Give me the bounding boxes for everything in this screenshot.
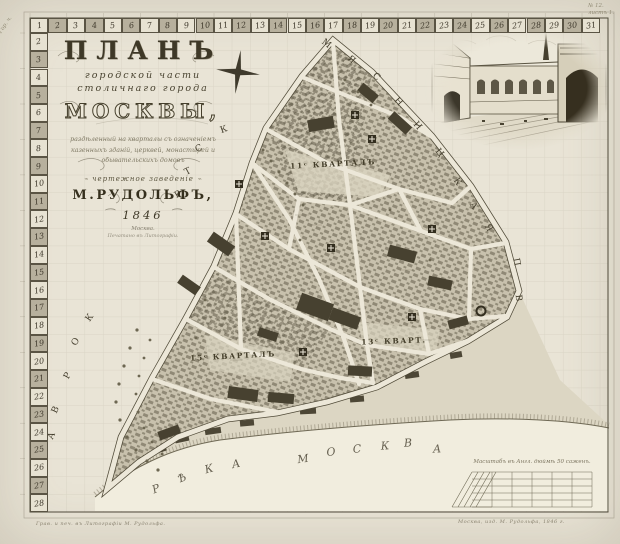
title-cartouche: ПЛАНЪ городской части столичнаго города … (48, 38, 238, 239)
title-script-line: раздѣленный на кварталы съ означеніемъ (48, 135, 238, 146)
imprint-right: Москва, изд. М. Рудольфа, 1846 г. (458, 519, 565, 525)
imprint-left: Грав. и печ. въ Литографіи М. Рудольфа. (36, 521, 166, 527)
title-script-line: обывательскихъ домовъ (48, 156, 238, 167)
map-title: ПЛАНЪ (48, 38, 238, 63)
scale-caption: Масштабъ въ Англ. дюймѣ 50 саженъ. (472, 459, 592, 465)
map-subtitle-1: городской части (48, 70, 238, 81)
map-subtitle-2: столичнаго города (48, 83, 238, 94)
publication-year: 1846 (48, 208, 238, 222)
corner-note-sheet: листъ 1. (588, 10, 614, 16)
corner-note-number: № 12. (588, 3, 604, 9)
author-name: М.РУДОЛЬФЪ, (48, 188, 238, 203)
publisher-line: чертежное заведеніе (48, 175, 238, 183)
place-line: Москва. (48, 226, 238, 232)
map-title-city: МОСКВЫ, (48, 99, 238, 123)
street-vignette (422, 24, 616, 151)
map-sheet: 1234567891011121314151617181920212223242… (0, 0, 620, 544)
press-line: Печатано въ Литографіи. (48, 233, 238, 239)
title-script-line: казенныхъ зданій, церквей, монастырей и (48, 146, 238, 157)
